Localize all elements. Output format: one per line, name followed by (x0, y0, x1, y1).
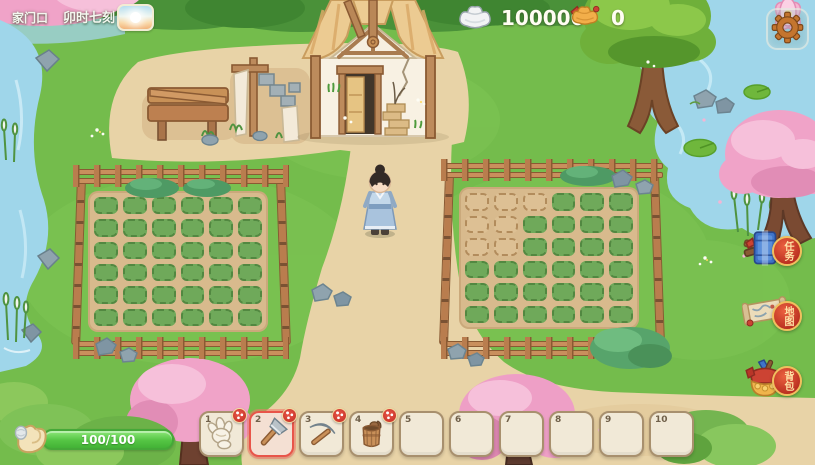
farm-plot-grass[interactable] (123, 309, 147, 326)
farm-plot-grass[interactable] (123, 264, 147, 281)
fence-left (439, 175, 454, 345)
fence-bottom (441, 337, 663, 359)
farm-plot-grass[interactable] (465, 261, 489, 279)
slot-number: 10 (655, 415, 668, 425)
farm-plot-grass[interactable] (523, 261, 547, 279)
hotbar-slot-6[interactable]: 6 (449, 411, 494, 457)
hotbar-slot-10[interactable]: 10 (649, 411, 694, 457)
fence-right (650, 175, 665, 345)
farm-plot-grass[interactable] (552, 283, 576, 301)
farm-plot-grass[interactable] (209, 264, 233, 281)
farm-plot-grass[interactable] (580, 283, 604, 301)
farm-plot-grass[interactable] (609, 283, 633, 301)
farm-plot-grass[interactable] (238, 219, 262, 236)
farm-plot-tilled[interactable] (494, 216, 518, 234)
farm-plot-grass[interactable] (552, 216, 576, 234)
side-badge-map[interactable]: 地图 (772, 301, 802, 331)
hotbar-slot-9[interactable]: 9 (599, 411, 644, 457)
hotbar-slot-5[interactable]: 5 (399, 411, 444, 457)
farm-plot-grass[interactable] (238, 242, 262, 259)
slot-number: 9 (605, 415, 611, 425)
field-left (73, 163, 289, 359)
stamina-group: 100/100 (10, 420, 172, 462)
farm-plot-grass[interactable] (609, 261, 633, 279)
side-label-quest: 任务 (782, 241, 792, 261)
farm-plot-grass[interactable] (181, 197, 205, 214)
farm-plot-grass[interactable] (523, 216, 547, 234)
farm-plot-grass[interactable] (238, 197, 262, 214)
farm-plot-tilled[interactable] (465, 193, 489, 211)
weather-indicator[interactable] (117, 4, 154, 31)
farm-plot-grass[interactable] (580, 261, 604, 279)
slot-number: 7 (505, 415, 511, 425)
fence-left (71, 181, 86, 345)
farm-plot-grass[interactable] (209, 286, 233, 303)
gear-icon (771, 11, 804, 47)
farm-plot-grass[interactable] (94, 286, 118, 303)
slot-number: 6 (455, 415, 461, 425)
field-right (441, 157, 663, 359)
fence-right (276, 181, 291, 345)
field-left-soil (88, 191, 268, 332)
farm-plot-grass[interactable] (209, 197, 233, 214)
farm-plot-grass[interactable] (152, 264, 176, 281)
farm-plot-tilled[interactable] (465, 216, 489, 234)
settings-button[interactable] (766, 8, 809, 50)
side-badge-quest[interactable]: 任务 (772, 236, 802, 266)
side-label-map: 地图 (782, 306, 792, 326)
farm-plot-grass[interactable] (580, 238, 604, 256)
farm-plot-grass[interactable] (123, 286, 147, 303)
farm-plot-tilled[interactable] (465, 238, 489, 256)
hotbar-slot-4-bucket[interactable]: 4 (349, 411, 394, 457)
currency-gold[interactable]: 0 (566, 2, 625, 34)
farm-plot-grass[interactable] (523, 238, 547, 256)
farm-plot-grass[interactable] (209, 309, 233, 326)
slot-number: 3 (305, 415, 311, 425)
item-alert-badge (232, 408, 247, 423)
farm-plot-grass[interactable] (609, 238, 633, 256)
farm-plot-grass[interactable] (238, 309, 262, 326)
farm-plot-grass[interactable] (209, 219, 233, 236)
field-left-plots (94, 197, 262, 326)
farm-plot-grass[interactable] (552, 261, 576, 279)
farm-plot-grass[interactable] (494, 283, 518, 301)
side-menu: 任务地图背包 (739, 224, 815, 408)
stamina-value: 100/100 (44, 431, 172, 448)
farm-plot-grass[interactable] (465, 283, 489, 301)
item-alert-badge (282, 408, 297, 423)
exposed-bricks (383, 104, 409, 135)
hotbar-slot-1-glove[interactable]: 1 (199, 411, 244, 457)
farm-plot-grass[interactable] (465, 306, 489, 324)
side-button-quest[interactable]: 任务 (739, 224, 815, 278)
slot-number: 2 (255, 415, 261, 425)
hotbar-slot-7[interactable]: 7 (499, 411, 544, 457)
farm-plot-grass[interactable] (552, 238, 576, 256)
gold-amount: 0 (611, 6, 625, 30)
farm-plot-grass[interactable] (181, 242, 205, 259)
side-button-backpack[interactable]: 背包 (739, 354, 815, 408)
farm-plot-grass[interactable] (580, 306, 604, 324)
farm-plot-grass[interactable] (181, 219, 205, 236)
farm-plot-grass[interactable] (94, 219, 118, 236)
hotbar-slot-2-axe[interactable]: 2 (249, 411, 294, 457)
farm-plot-grass[interactable] (494, 261, 518, 279)
house-door[interactable] (337, 66, 383, 134)
farm-plot-grass[interactable] (123, 242, 147, 259)
farm-plot-grass[interactable] (94, 197, 118, 214)
farm-plot-grass[interactable] (152, 309, 176, 326)
field-right-plots (465, 193, 633, 323)
farm-plot-grass[interactable] (552, 193, 576, 211)
farm-plot-grass[interactable] (609, 216, 633, 234)
farmhouse[interactable] (297, 0, 449, 145)
fence-top (441, 159, 663, 181)
field-right-soil (459, 187, 639, 329)
silver-ingot-icon (456, 1, 494, 35)
slot-number: 8 (555, 415, 561, 425)
farm-plot-grass[interactable] (181, 264, 205, 281)
farm-plot-tilled[interactable] (523, 193, 547, 211)
item-alert-badge (382, 408, 397, 423)
farm-plot-grass[interactable] (494, 306, 518, 324)
muscle-arm-icon (10, 422, 52, 458)
farm-plot-tilled[interactable] (494, 193, 518, 211)
farm-plot-grass[interactable] (94, 242, 118, 259)
hotbar-slot-8[interactable]: 8 (549, 411, 594, 457)
sunrise-icon (130, 12, 141, 23)
hotbar-slot-3-pickaxe[interactable]: 3 (299, 411, 344, 457)
slot-number: 1 (205, 415, 211, 425)
farm-plot-grass[interactable] (94, 264, 118, 281)
game-viewport: 家门口 卯时七刻 100000 0 任务地图背包 100/100 1234567… (0, 0, 815, 465)
farm-plot-grass[interactable] (123, 197, 147, 214)
time-label: 卯时七刻 (63, 7, 115, 26)
farm-plot-grass[interactable] (123, 219, 147, 236)
farm-plot-grass[interactable] (94, 309, 118, 326)
farm-plot-grass[interactable] (238, 286, 262, 303)
farm-plot-grass[interactable] (523, 306, 547, 324)
side-button-map[interactable]: 地图 (739, 289, 815, 343)
stamina-bar: 100/100 (42, 429, 174, 450)
slot-number: 5 (405, 415, 411, 425)
fence-top (73, 165, 289, 187)
farm-plot-grass[interactable] (580, 193, 604, 211)
farm-plot-grass[interactable] (552, 306, 576, 324)
farm-plot-grass[interactable] (580, 216, 604, 234)
farm-plot-grass[interactable] (238, 264, 262, 281)
fence-bottom (73, 337, 289, 359)
farm-plot-grass[interactable] (152, 286, 176, 303)
farm-plot-grass[interactable] (181, 286, 205, 303)
location-label: 家门口 (12, 9, 48, 26)
farm-plot-tilled[interactable] (494, 238, 518, 256)
farm-plot-grass[interactable] (209, 242, 233, 259)
slot-number: 4 (355, 415, 361, 425)
gold-ingot-icon (566, 1, 604, 35)
farm-plot-grass[interactable] (152, 242, 176, 259)
farm-plot-grass[interactable] (152, 197, 176, 214)
hotbar: 12345678910 (199, 411, 694, 457)
farm-plot-grass[interactable] (152, 219, 176, 236)
item-alert-badge (332, 408, 347, 423)
farm-plot-grass[interactable] (609, 193, 633, 211)
farm-plot-grass[interactable] (609, 306, 633, 324)
farm-plot-grass[interactable] (523, 283, 547, 301)
farm-plot-grass[interactable] (181, 309, 205, 326)
side-label-backpack: 背包 (782, 371, 792, 391)
side-badge-backpack[interactable]: 背包 (772, 366, 802, 396)
